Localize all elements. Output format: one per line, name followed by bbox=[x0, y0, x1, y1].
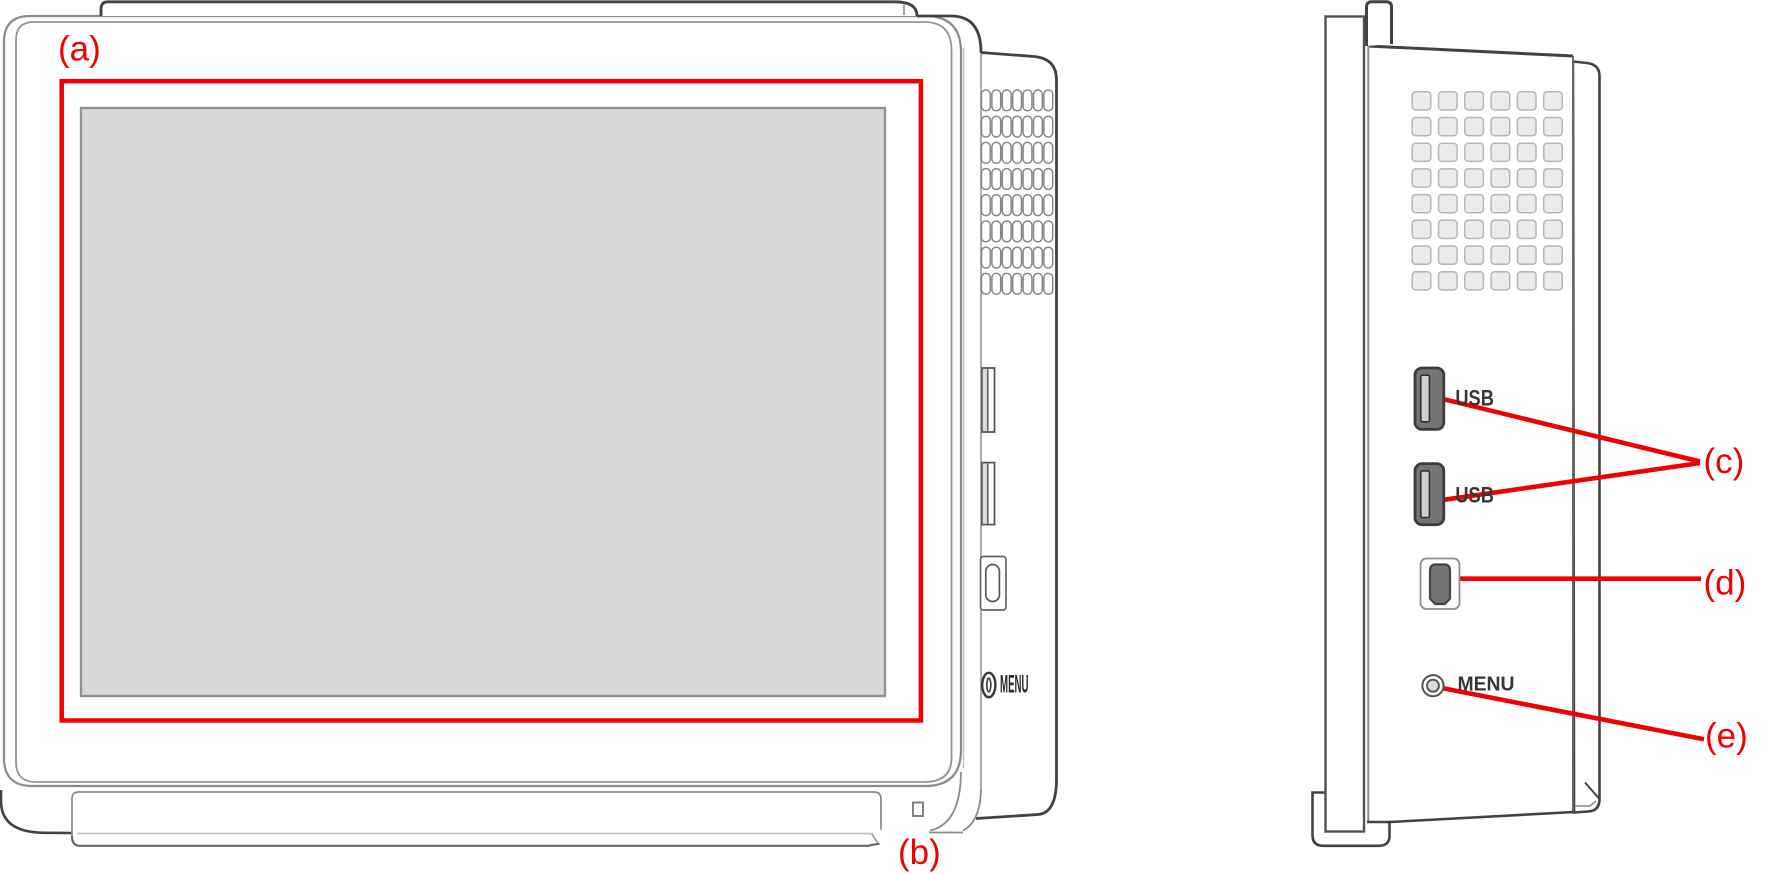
svg-text:(b): (b) bbox=[898, 833, 941, 872]
svg-text:MENU: MENU bbox=[1458, 674, 1515, 696]
svg-text:(a): (a) bbox=[58, 30, 101, 69]
svg-text:(e): (e) bbox=[1705, 717, 1748, 756]
svg-text:(d): (d) bbox=[1704, 564, 1747, 603]
svg-text:USB: USB bbox=[1455, 386, 1494, 411]
svg-text:MENU: MENU bbox=[1000, 671, 1029, 699]
svg-text:USB: USB bbox=[1455, 482, 1494, 507]
svg-text:(c): (c) bbox=[1704, 442, 1745, 481]
